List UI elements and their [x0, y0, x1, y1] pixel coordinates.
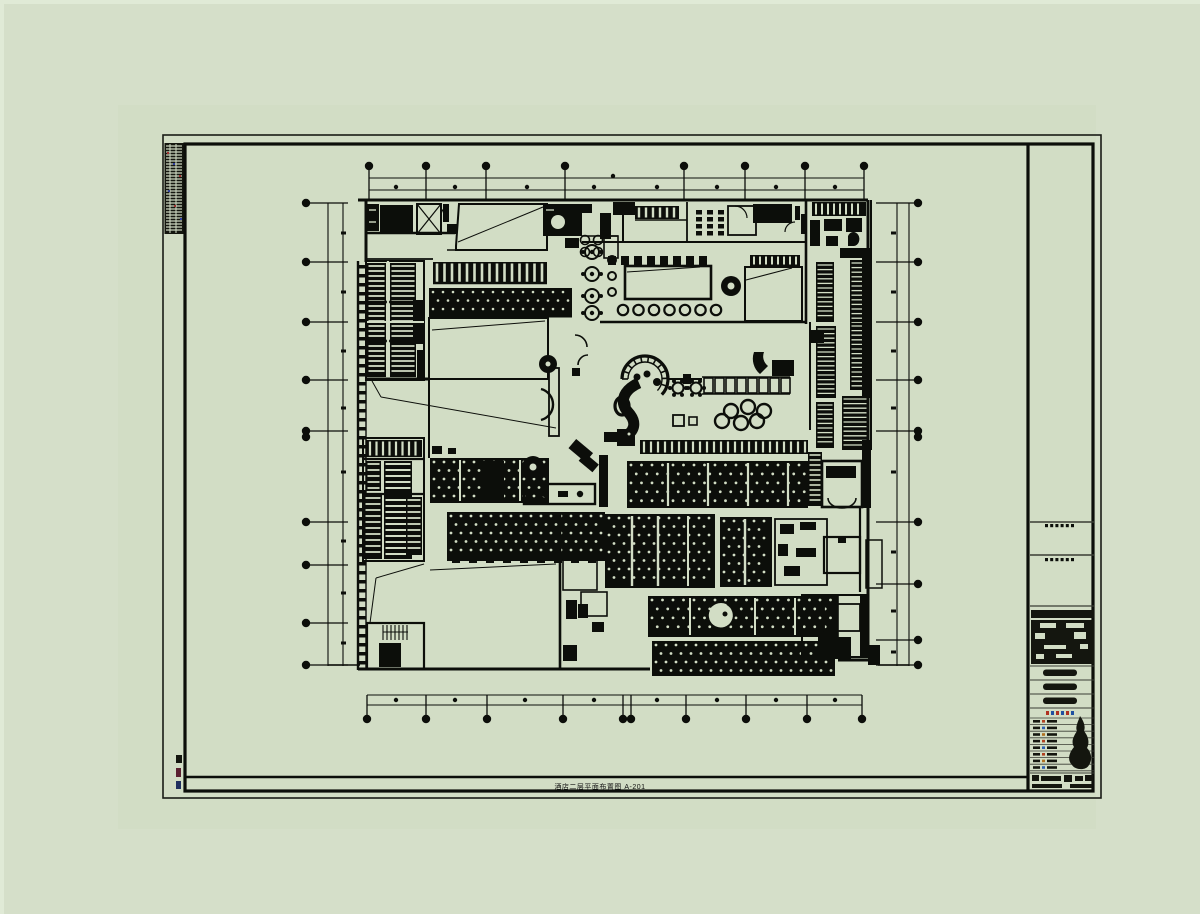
svg-text:酒店二层平面布置图 A-201: 酒店二层平面布置图 A-201 — [554, 782, 645, 791]
